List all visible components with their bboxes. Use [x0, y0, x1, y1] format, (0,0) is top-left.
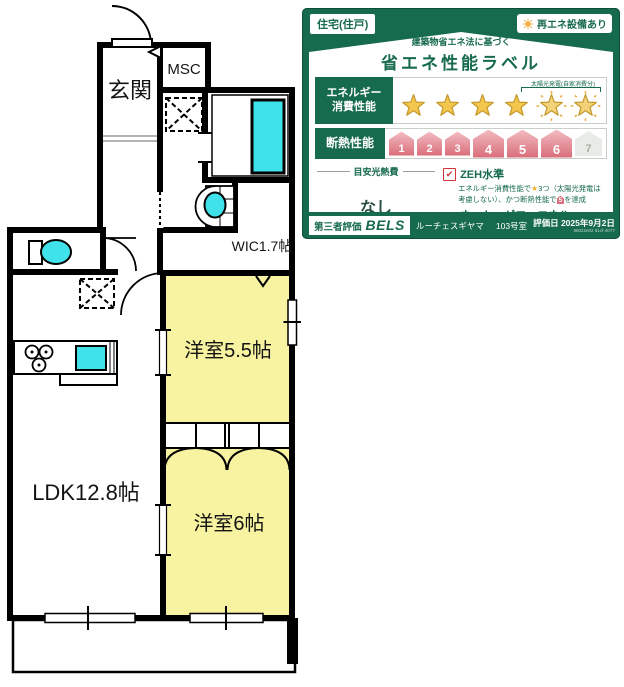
- zeh-level-description: エネルギー消費性能で★3つ（太陽光発電は考慮しない）、かつ断熱性能で5を達成: [458, 183, 605, 205]
- room-label-ldk: LDK12.8帖: [32, 480, 140, 505]
- insulation-row-label: 断熱性能: [315, 128, 385, 159]
- label-body: 建築物省エネ法に基づく 省エネ性能ラベル エネルギー 消費性能 太陽光発電(自家…: [309, 32, 613, 212]
- room-label-wic: WIC1.7帖: [232, 238, 293, 254]
- room-label-entrance: 玄関: [108, 78, 152, 103]
- label-title: 省エネ性能ラベル: [309, 49, 613, 74]
- utility-cost-heading: 目安光熱費: [354, 165, 399, 178]
- evaluation-code: 96022e02 61cf-4077: [533, 228, 615, 233]
- floorplan: 玄関 MSC WIC1.7帖 洋室5.5帖 LDK12.8帖 洋室6帖: [0, 0, 302, 687]
- energy-row-label: エネルギー 消費性能: [315, 77, 393, 124]
- insulation-level-3: 3: [445, 132, 470, 156]
- room-label-bedroom1: 洋室5.5帖: [184, 339, 272, 362]
- star-icon: [466, 90, 499, 122]
- divider: [317, 242, 435, 243]
- solar-star-icon: [569, 90, 602, 122]
- building-info: ルーチェスギヤマ 103号室: [416, 220, 527, 232]
- checkmark-icon: ✔: [443, 168, 456, 181]
- renewable-equipment-badge: 再エネ設備あり: [517, 14, 612, 33]
- kitchen-sink: [76, 346, 106, 370]
- insulation-performance-row: 断熱性能 1234567: [315, 128, 607, 159]
- bath-door-ticks: [198, 133, 212, 162]
- insulation-level-7: 7: [575, 131, 602, 156]
- room-label-bedroom2: 洋室6帖: [193, 512, 264, 535]
- solar-bracket: [521, 87, 601, 92]
- evaluation-date-block: 評価日 2025年9月2日 96022e02 61cf-4077: [533, 218, 615, 234]
- entrance-door-leaf: [112, 39, 152, 47]
- unit-number: 103号室: [496, 220, 527, 232]
- page: 玄関 MSC WIC1.7帖 洋室5.5帖 LDK12.8帖 洋室6帖 住宅(住…: [0, 0, 624, 687]
- dwelling-type-badge: 住宅(住戸): [310, 14, 375, 34]
- insulation-level-6: 6: [541, 130, 572, 158]
- solar-star-icon: [535, 90, 568, 122]
- star-rating-area: 太陽光発電(自家消費分): [393, 77, 607, 124]
- insulation-level-2: 2: [417, 132, 442, 156]
- building-name: ルーチェスギヤマ: [416, 220, 484, 232]
- label-header: 住宅(住戸) 再エネ設備あり: [310, 14, 612, 34]
- star-icon: [397, 90, 430, 122]
- divider: [403, 171, 436, 172]
- third-party-cert-label: 第三者評価: [314, 219, 362, 233]
- star-icon: [500, 90, 533, 122]
- bels-badge: 第三者評価 BELS: [309, 216, 410, 235]
- divider: [317, 171, 350, 172]
- star-icon: [431, 90, 464, 122]
- label-subtitle: 建築物省エネ法に基づく: [309, 35, 613, 48]
- kitchen: [14, 341, 117, 385]
- bathtub: [252, 100, 284, 173]
- sun-icon: [522, 18, 534, 30]
- energy-performance-row: エネルギー 消費性能 太陽光発電(自家消費分): [315, 77, 607, 124]
- balcony: [13, 620, 295, 672]
- room-label-msc: MSC: [167, 61, 201, 78]
- insulation-level-1: 1: [389, 132, 414, 156]
- zeh-level-title: ZEH水準: [460, 166, 504, 182]
- entrance-threshold: [101, 136, 159, 141]
- insulation-level-4: 4: [473, 130, 504, 158]
- balcony-wall-stub: [287, 618, 298, 664]
- label-footer: 第三者評価 BELS ルーチェスギヤマ 103号室 評価日 2025年9月2日 …: [302, 212, 620, 239]
- toilet: [29, 240, 71, 264]
- renewable-equipment-text: 再エネ設備あり: [537, 16, 607, 31]
- insulation-level-5: 5: [507, 130, 538, 158]
- closet-band: [164, 423, 290, 448]
- bels-brand: BELS: [366, 217, 405, 233]
- energy-label-panel: 住宅(住戸) 再エネ設備あり 建築物省エネ法に基づく 省エネ性能ラベル エネル: [302, 8, 620, 239]
- net-zero-description: 太陽光発電の売電分も含めてエネルギー収支がゼロ以下を達成: [458, 240, 605, 261]
- washbasin: [195, 186, 234, 227]
- insulation-scale: 1234567: [385, 128, 607, 159]
